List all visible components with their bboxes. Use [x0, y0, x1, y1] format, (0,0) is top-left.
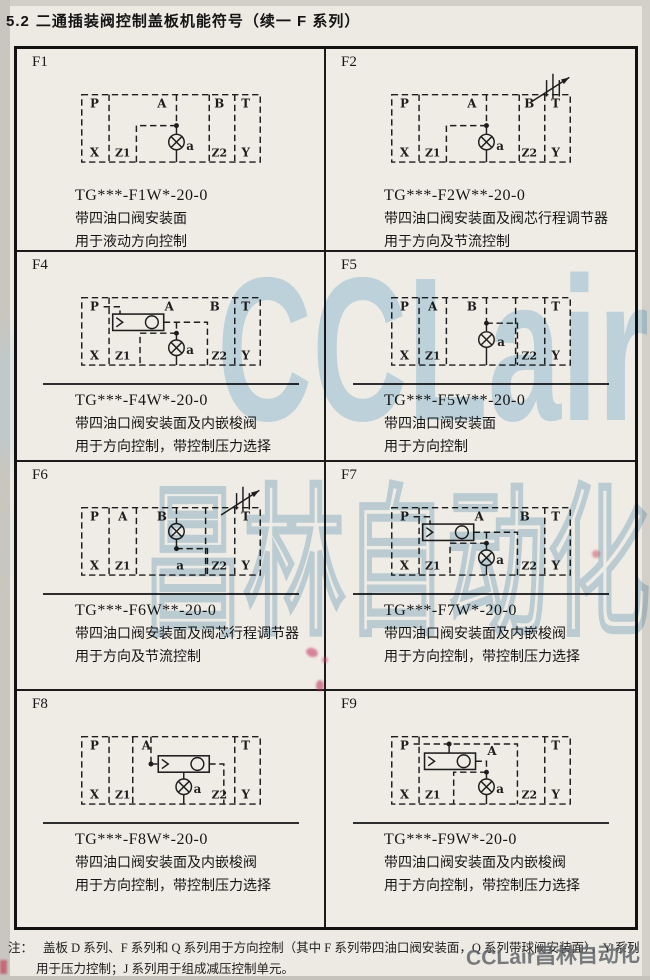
svg-text:Y: Y [240, 788, 250, 802]
description-line: 用于方向控制，带控制压力选择 [75, 436, 324, 456]
cell-F5: F5 PABTXZ1aZ2Y TG***-F5W**-20-0 带四油口阀安装面… [326, 252, 635, 462]
section-number: 5.2 [6, 13, 30, 30]
section-title: 二通插装阀控制盖板机能符号（续一 F 系列） [36, 13, 361, 30]
svg-text:a: a [496, 553, 504, 567]
footnote-line2: 用于压力控制；J 系列用于组成减压控制单元。 [36, 959, 644, 980]
cell-label: F4 [32, 257, 324, 274]
description-line: 带四油口阀安装面及内嵌梭阀 [384, 623, 635, 643]
cell-F1: F1 PABTXZ1aZ2Y TG***-F1W*-20-0 带四油口阀安装面 … [17, 49, 326, 252]
svg-text:B: B [466, 299, 476, 313]
svg-text:Z1: Z1 [424, 147, 440, 160]
svg-text:X: X [89, 146, 99, 160]
svg-text:P: P [400, 299, 409, 313]
svg-text:B: B [524, 96, 534, 110]
scan-edge-top [0, 0, 650, 6]
cell-F4: F4 PABTXZ1aZ2Y TG***-F4W*-20-0 带四油口阀安装面及… [17, 252, 326, 462]
svg-text:X: X [89, 788, 99, 802]
cell-label: F1 [32, 54, 324, 71]
page-title: 5.2二通插装阀控制盖板机能符号（续一 F 系列） [6, 10, 636, 31]
model-code: TG***-F7W*-20-0 [384, 602, 635, 620]
model-code: TG***-F8W*-20-0 [75, 831, 324, 849]
svg-text:Z2: Z2 [211, 350, 227, 363]
svg-text:Z1: Z1 [114, 147, 130, 160]
description-line: 用于方向控制，带控制压力选择 [384, 875, 635, 895]
svg-text:T: T [551, 299, 560, 313]
svg-text:X: X [89, 559, 99, 573]
footnote-line1: 盖板 D 系列、F 系列和 Q 系列用于方向控制（其中 F 系列带四油口阀安装面… [43, 941, 639, 955]
cell-F9: F9 PATXZ1aZ2Y TG***-F9W*-20-0 带四油口阀安装面及内… [326, 691, 635, 927]
description-line: 用于方向控制，带控制压力选择 [75, 875, 324, 895]
footnote-label: 注： [8, 941, 33, 955]
description-line: 带四油口阀安装面及内嵌梭阀 [75, 413, 324, 433]
description-line: 带四油口阀安装面及阀芯行程调节器 [75, 623, 324, 643]
svg-text:Y: Y [240, 559, 250, 573]
cell-label: F2 [341, 54, 635, 71]
hydraulic-schematic: PABTXZ1aZ2Y [370, 274, 592, 376]
svg-text:Z1: Z1 [114, 560, 130, 573]
svg-text:Y: Y [240, 146, 250, 160]
model-code: TG***-F4W*-20-0 [75, 392, 324, 410]
description-line: 带四油口阀安装面及阀芯行程调节器 [384, 208, 635, 228]
cell-label: F8 [32, 696, 324, 713]
svg-text:A: A [156, 96, 167, 110]
cell-F2: F2 PABTXZ1aZ2Y TG***-F2W**-20-0 带四油口阀安装面… [326, 49, 635, 252]
footnote: 注：盖板 D 系列、F 系列和 Q 系列用于方向控制（其中 F 系列带四油口阀安… [8, 938, 644, 979]
cell-divider [43, 822, 299, 824]
svg-text:Z2: Z2 [521, 350, 537, 363]
cell-divider [43, 383, 299, 385]
hydraulic-schematic: PATXZ1aZ2Y [60, 713, 282, 815]
model-code: TG***-F9W*-20-0 [384, 831, 635, 849]
scan-edge-left [0, 0, 10, 980]
model-code: TG***-F2W**-20-0 [384, 187, 635, 205]
cell-divider [43, 593, 299, 595]
hydraulic-schematic: PATXZ1aZ2Y [370, 713, 592, 815]
svg-text:T: T [551, 96, 560, 110]
cell-label: F6 [32, 467, 324, 484]
svg-text:A: A [466, 96, 477, 110]
svg-text:T: T [551, 509, 560, 523]
svg-text:A: A [427, 299, 438, 313]
svg-text:Z1: Z1 [424, 789, 440, 802]
svg-text:a: a [193, 782, 201, 796]
cell-divider [353, 593, 609, 595]
description-line: 用于方向控制 [384, 436, 635, 456]
svg-text:a: a [176, 559, 184, 573]
svg-text:Z2: Z2 [211, 147, 227, 160]
svg-text:Z2: Z2 [521, 789, 537, 802]
svg-text:T: T [241, 509, 250, 523]
hydraulic-schematic: PABTXZ1aZ2Y [60, 71, 282, 173]
svg-text:P: P [400, 96, 409, 110]
svg-text:A: A [486, 744, 497, 758]
svg-text:Z2: Z2 [211, 560, 227, 573]
model-code: TG***-F5W**-20-0 [384, 392, 635, 410]
svg-text:T: T [551, 738, 560, 752]
svg-text:B: B [519, 509, 529, 523]
svg-text:B: B [156, 509, 166, 523]
svg-text:Y: Y [240, 349, 250, 363]
hydraulic-schematic: PABTXZ1aZ2Y [370, 484, 592, 586]
model-code: TG***-F1W*-20-0 [75, 187, 324, 205]
svg-text:a: a [496, 139, 504, 153]
svg-text:X: X [399, 788, 409, 802]
cell-F6: F6 PABTXZ1aZ2Y TG***-F6W**-20-0 带四油口阀安装面… [17, 462, 326, 691]
description-line: 用于方向控制，带控制压力选择 [384, 646, 635, 666]
svg-text:B: B [214, 96, 224, 110]
description-line: 带四油口阀安装面 [384, 413, 635, 433]
hydraulic-schematic: PABTXZ1aZ2Y [60, 484, 282, 586]
svg-text:A: A [163, 299, 174, 313]
cell-F8: F8 PATXZ1aZ2Y TG***-F8W*-20-0 带四油口阀安装面及内… [17, 691, 326, 927]
cell-label: F5 [341, 257, 635, 274]
svg-text:a: a [497, 335, 505, 349]
svg-text:A: A [140, 738, 151, 752]
svg-text:Z2: Z2 [521, 147, 537, 160]
svg-text:X: X [399, 349, 409, 363]
svg-text:B: B [209, 299, 219, 313]
svg-text:a: a [496, 782, 504, 796]
hydraulic-schematic: PABTXZ1aZ2Y [60, 274, 282, 376]
svg-text:Z1: Z1 [424, 350, 440, 363]
cell-F7: F7 PABTXZ1aZ2Y TG***-F7W*-20-0 带四油口阀安装面及… [326, 462, 635, 691]
description-line: 用于方向及节流控制 [75, 646, 324, 666]
description-line: 带四油口阀安装面及内嵌梭阀 [75, 852, 324, 872]
svg-text:a: a [186, 139, 194, 153]
svg-text:Z1: Z1 [114, 350, 130, 363]
cell-divider [353, 383, 609, 385]
cell-label: F9 [341, 696, 635, 713]
svg-text:Z1: Z1 [114, 789, 130, 802]
svg-text:T: T [241, 299, 250, 313]
svg-text:P: P [90, 299, 99, 313]
svg-text:T: T [241, 96, 250, 110]
svg-text:T: T [241, 738, 250, 752]
svg-text:a: a [186, 343, 194, 357]
svg-text:P: P [90, 738, 99, 752]
scan-edge-right [642, 0, 650, 980]
description-line: 用于液动方向控制 [75, 231, 324, 251]
svg-text:Z2: Z2 [211, 789, 227, 802]
model-code: TG***-F6W**-20-0 [75, 602, 324, 620]
scanned-catalog-page: 5.2二通插装阀控制盖板机能符号（续一 F 系列） F1 PABTXZ1aZ2Y… [0, 0, 650, 980]
svg-text:Y: Y [550, 788, 560, 802]
svg-text:A: A [473, 509, 484, 523]
svg-text:P: P [90, 96, 99, 110]
description-line: 带四油口阀安装面 [75, 208, 324, 228]
svg-text:Y: Y [550, 349, 560, 363]
svg-text:X: X [399, 559, 409, 573]
svg-text:P: P [400, 509, 409, 523]
description-line: 用于方向及节流控制 [384, 231, 635, 251]
svg-text:X: X [89, 349, 99, 363]
hydraulic-schematic: PABTXZ1aZ2Y [370, 71, 592, 173]
svg-text:Z1: Z1 [424, 560, 440, 573]
description-line: 带四油口阀安装面及内嵌梭阀 [384, 852, 635, 872]
svg-text:P: P [90, 509, 99, 523]
cell-label: F7 [341, 467, 635, 484]
svg-text:Y: Y [550, 146, 560, 160]
svg-text:X: X [399, 146, 409, 160]
svg-text:Y: Y [550, 559, 560, 573]
svg-text:Z2: Z2 [521, 560, 537, 573]
cell-divider [353, 822, 609, 824]
symbol-table: F1 PABTXZ1aZ2Y TG***-F1W*-20-0 带四油口阀安装面 … [14, 46, 638, 930]
svg-text:A: A [117, 509, 128, 523]
svg-text:P: P [400, 738, 409, 752]
